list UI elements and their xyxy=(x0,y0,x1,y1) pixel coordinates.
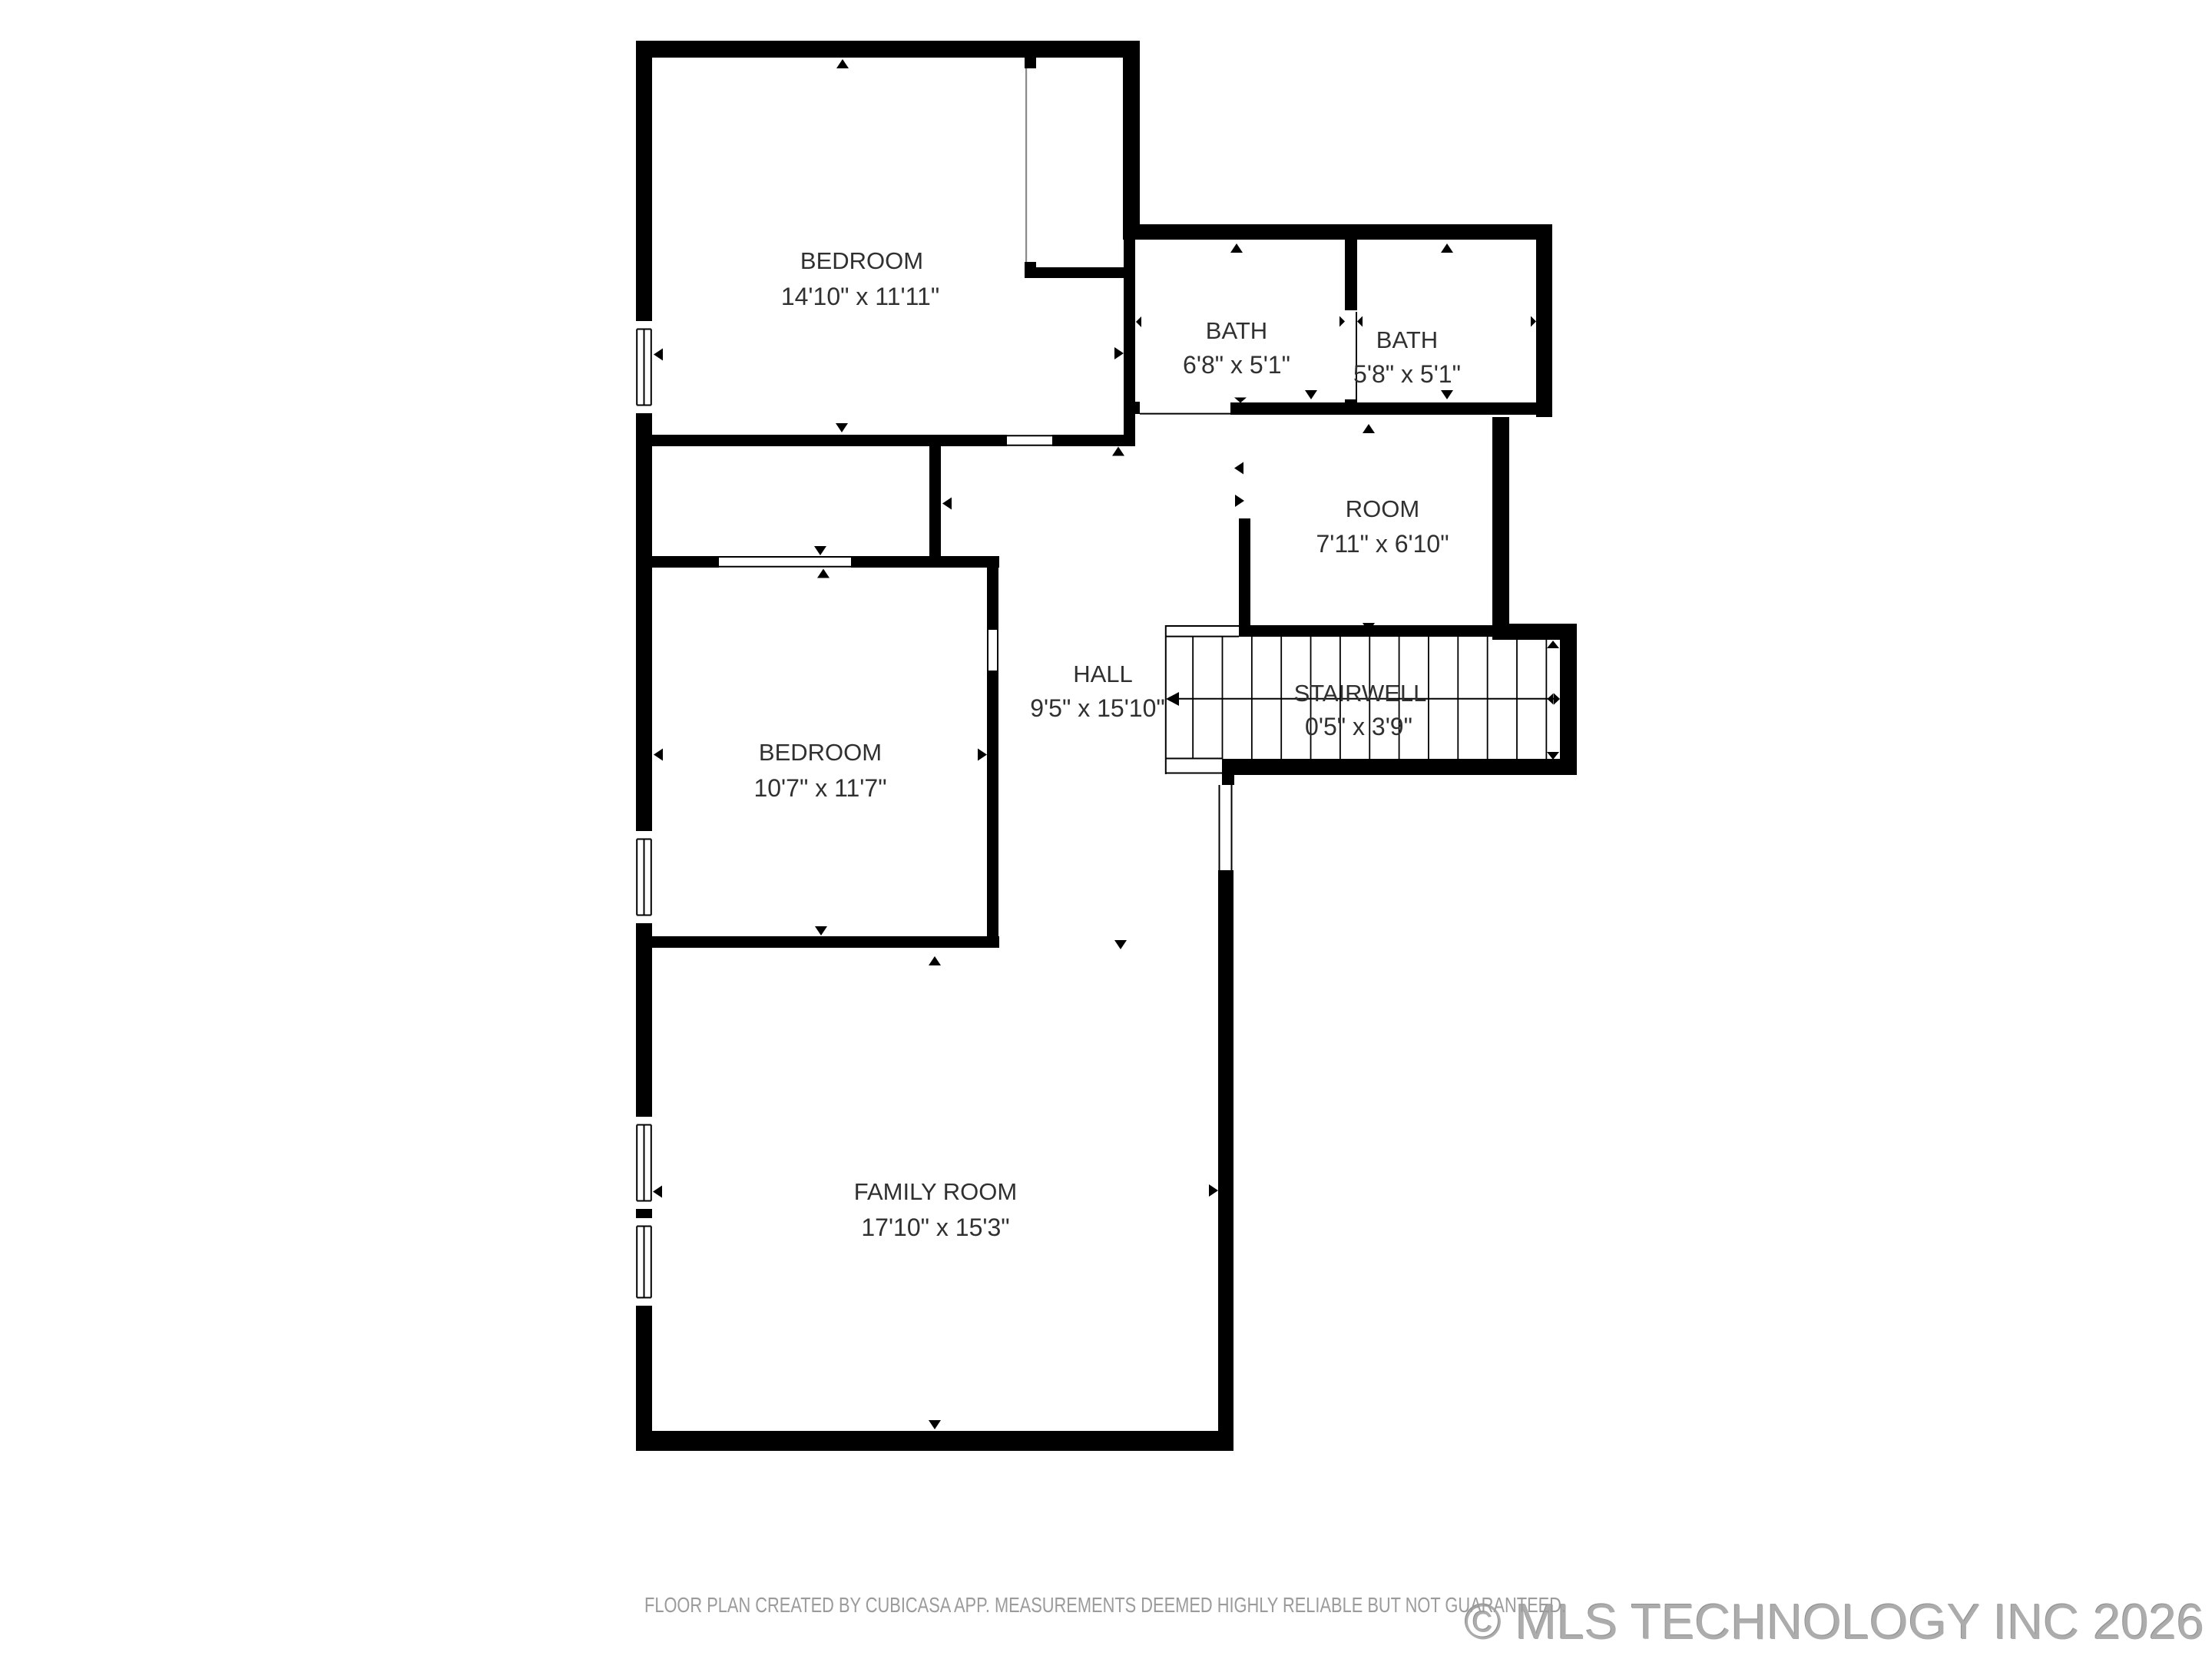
svg-text:HALL: HALL xyxy=(1073,661,1133,687)
svg-text:ROOM: ROOM xyxy=(1346,495,1419,522)
svg-text:FLOOR PLAN CREATED BY CUBICASA: FLOOR PLAN CREATED BY CUBICASA APP. MEAS… xyxy=(644,1594,1566,1618)
svg-text:STAIRWELL: STAIRWELL xyxy=(1294,680,1427,707)
svg-text:BEDROOM: BEDROOM xyxy=(759,739,882,766)
svg-text:0'5" x 3'9": 0'5" x 3'9" xyxy=(1305,713,1412,740)
svg-text:BATH: BATH xyxy=(1376,326,1438,353)
svg-text:14'10" x 11'11": 14'10" x 11'11" xyxy=(781,283,939,310)
svg-text:17'10" x 15'3": 17'10" x 15'3" xyxy=(861,1214,1009,1241)
svg-text:BEDROOM: BEDROOM xyxy=(800,247,923,274)
svg-text:5'8" x 5'1": 5'8" x 5'1" xyxy=(1353,360,1461,388)
svg-text:7'11" x 6'10": 7'11" x 6'10" xyxy=(1316,530,1449,558)
svg-text:10'7" x 11'7": 10'7" x 11'7" xyxy=(753,774,886,802)
svg-text:BATH: BATH xyxy=(1206,317,1267,344)
svg-text:6'8" x 5'1": 6'8" x 5'1" xyxy=(1183,351,1290,379)
svg-text:© MLS TECHNOLOGY INC 2026: © MLS TECHNOLOGY INC 2026 xyxy=(1465,1594,2204,1650)
svg-text:9'5" x 15'10": 9'5" x 15'10" xyxy=(1030,694,1165,722)
svg-text:FAMILY ROOM: FAMILY ROOM xyxy=(854,1178,1017,1205)
